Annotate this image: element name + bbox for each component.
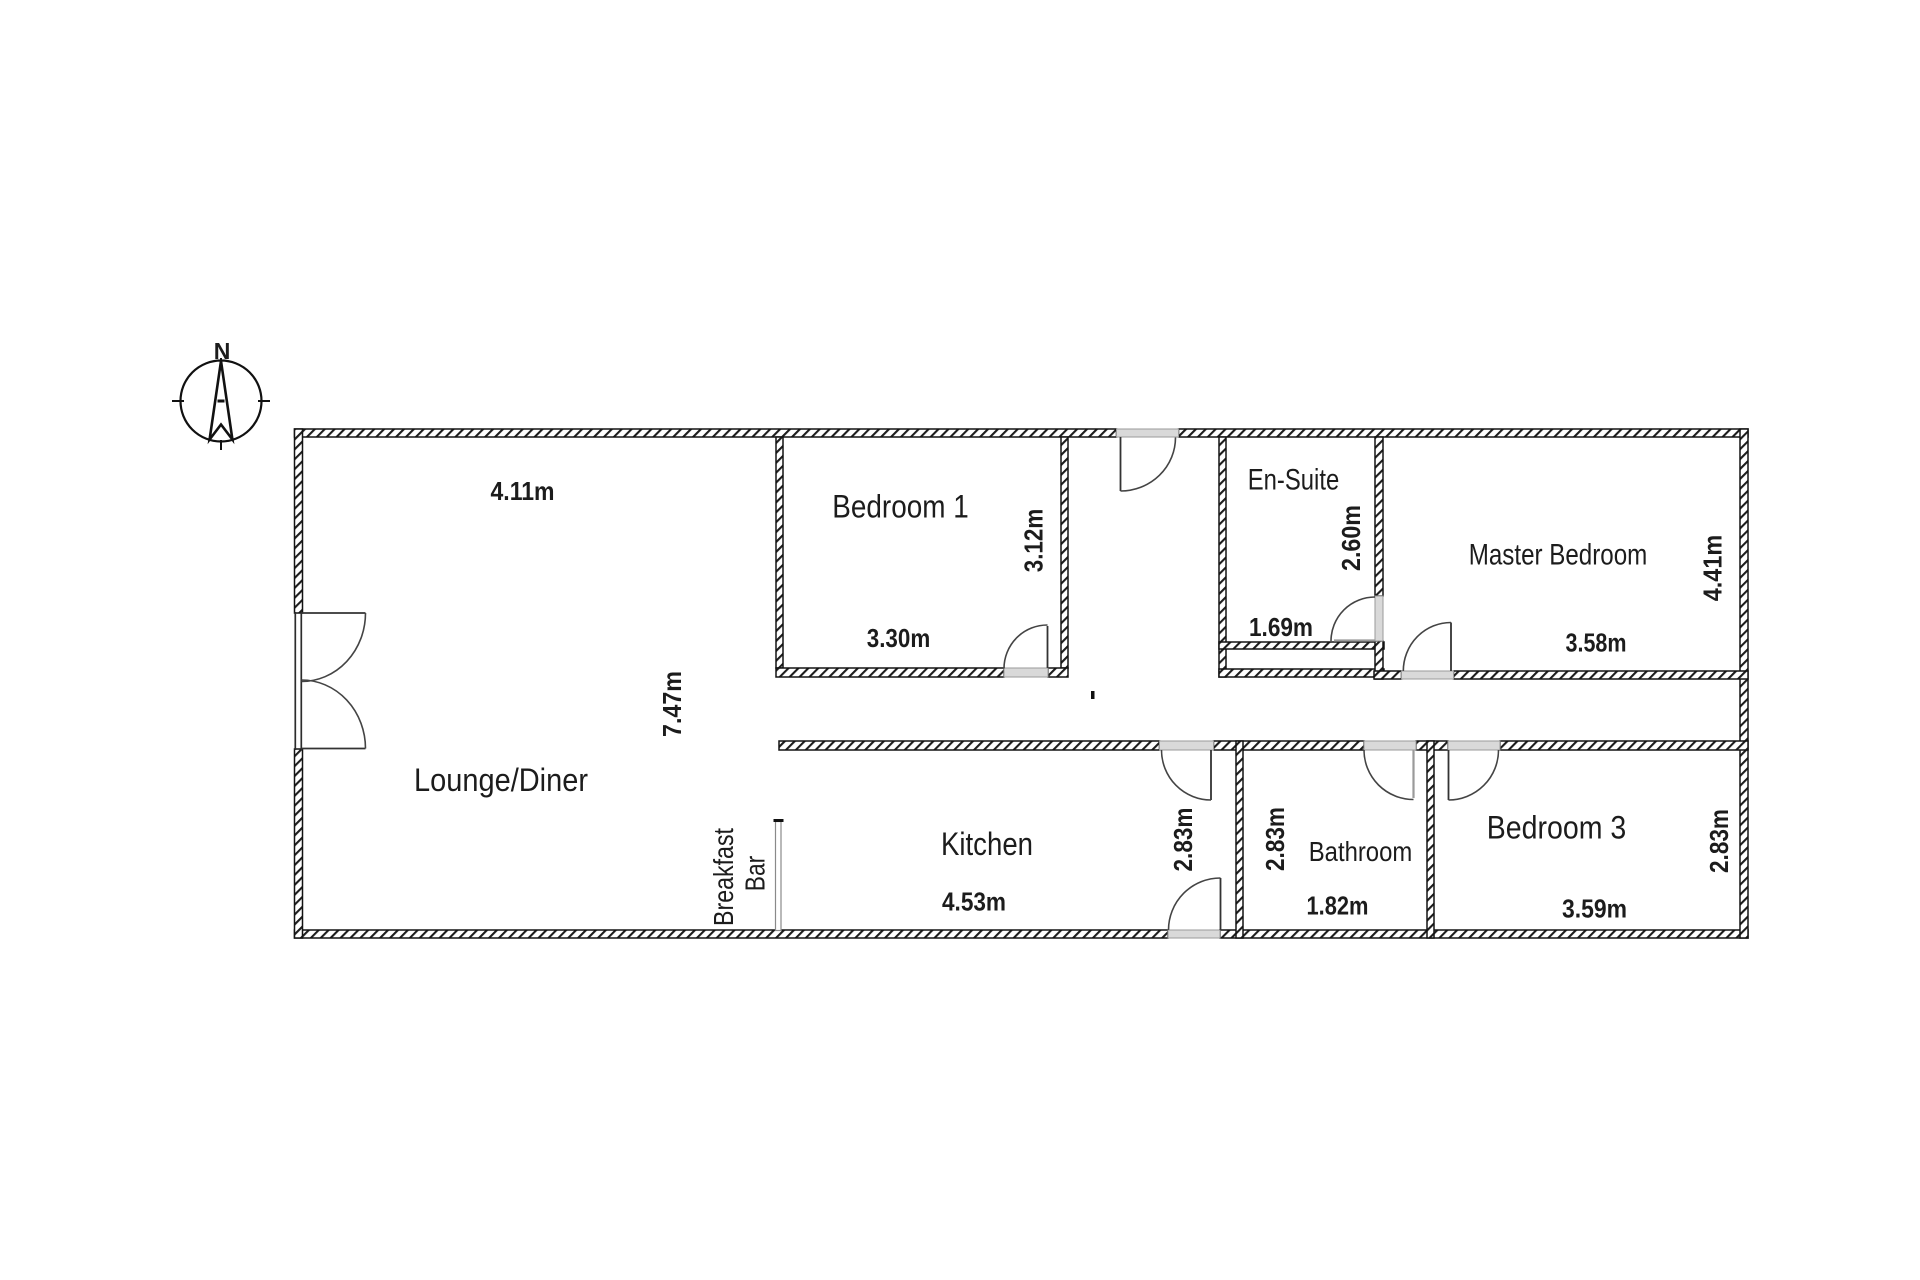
- svg-text:4.11m: 4.11m: [491, 476, 555, 506]
- svg-text:Master Bedroom: Master Bedroom: [1469, 539, 1648, 572]
- svg-text:Kitchen: Kitchen: [941, 826, 1033, 862]
- svg-text:Bathroom: Bathroom: [1309, 836, 1413, 867]
- svg-text:2.83m: 2.83m: [1704, 809, 1734, 873]
- svg-text:3.59m: 3.59m: [1562, 894, 1627, 924]
- svg-text:N: N: [214, 338, 231, 364]
- svg-text:2.60m: 2.60m: [1336, 505, 1366, 571]
- svg-text:1.82m: 1.82m: [1307, 891, 1369, 921]
- svg-text:4.41m: 4.41m: [1698, 535, 1728, 602]
- svg-text:7.47m: 7.47m: [657, 671, 687, 737]
- svg-text:3.58m: 3.58m: [1566, 628, 1627, 658]
- svg-text:Breakfast: Breakfast: [708, 828, 739, 926]
- svg-text:Bedroom 1: Bedroom 1: [832, 489, 969, 525]
- svg-text:En-Suite: En-Suite: [1248, 464, 1340, 497]
- svg-text:2.83m: 2.83m: [1260, 807, 1290, 871]
- svg-text:Bar: Bar: [740, 856, 771, 892]
- svg-text:3.12m: 3.12m: [1019, 509, 1049, 573]
- svg-text:4.53m: 4.53m: [942, 887, 1006, 917]
- svg-text:Lounge/Diner: Lounge/Diner: [414, 762, 588, 798]
- svg-text:Bedroom 3: Bedroom 3: [1487, 810, 1627, 846]
- svg-text:3.30m: 3.30m: [867, 623, 931, 653]
- svg-text:2.83m: 2.83m: [1168, 808, 1198, 872]
- svg-text:1.69m: 1.69m: [1249, 612, 1313, 642]
